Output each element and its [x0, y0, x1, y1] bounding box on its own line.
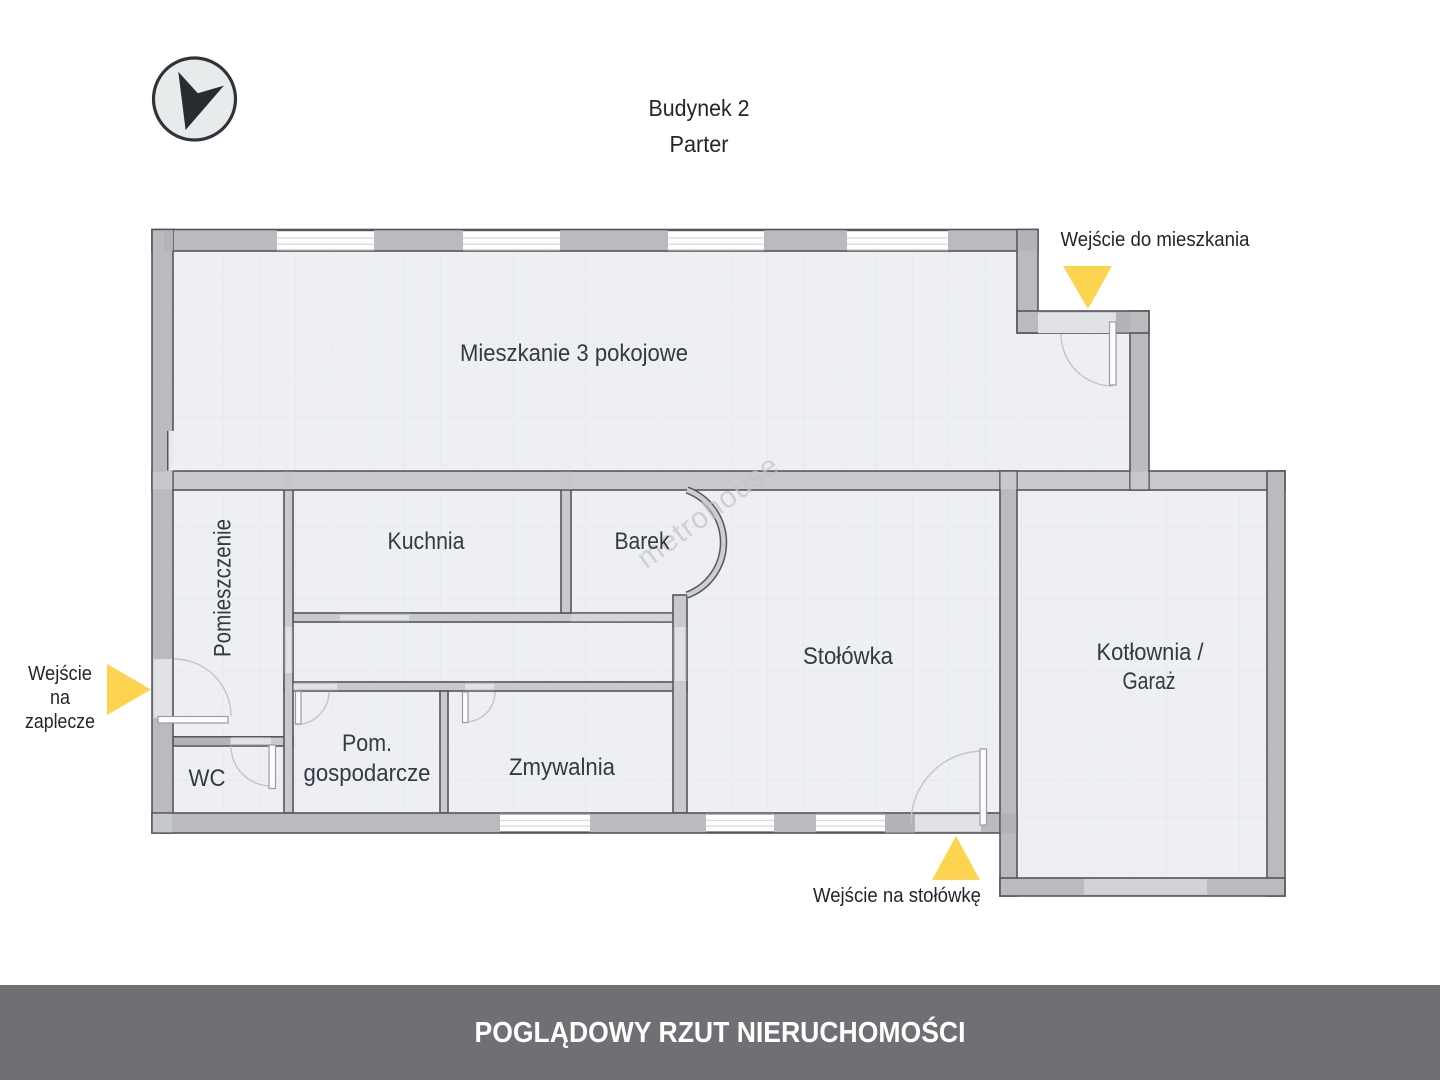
svg-text:Parter: Parter	[670, 131, 729, 157]
svg-text:zaplecze: zaplecze	[25, 710, 95, 733]
svg-text:Wejście do mieszkania: Wejście do mieszkania	[1061, 228, 1251, 251]
svg-text:WC: WC	[189, 765, 226, 792]
svg-text:Zmywalnia: Zmywalnia	[509, 754, 616, 781]
svg-text:Mieszkanie 3 pokojowe: Mieszkanie 3 pokojowe	[460, 340, 688, 367]
svg-text:POGLĄDOWY RZUT NIERUCHOMOŚCI: POGLĄDOWY RZUT NIERUCHOMOŚCI	[475, 1017, 966, 1049]
svg-text:Budynek 2: Budynek 2	[649, 95, 750, 121]
svg-text:Wejście: Wejście	[28, 662, 92, 685]
svg-text:Barek: Barek	[615, 528, 671, 555]
svg-text:Kotłownia /: Kotłownia /	[1097, 639, 1204, 666]
svg-text:Garaż: Garaż	[1123, 668, 1176, 695]
svg-text:Stołówka: Stołówka	[803, 643, 894, 670]
svg-text:Pom.: Pom.	[342, 730, 392, 757]
svg-text:Wejście na stołówkę: Wejście na stołówkę	[813, 884, 981, 907]
svg-text:na: na	[50, 686, 71, 709]
svg-text:gospodarcze: gospodarcze	[304, 760, 431, 787]
svg-text:Pomieszczenie: Pomieszczenie	[210, 519, 237, 657]
svg-text:Kuchnia: Kuchnia	[388, 528, 466, 555]
